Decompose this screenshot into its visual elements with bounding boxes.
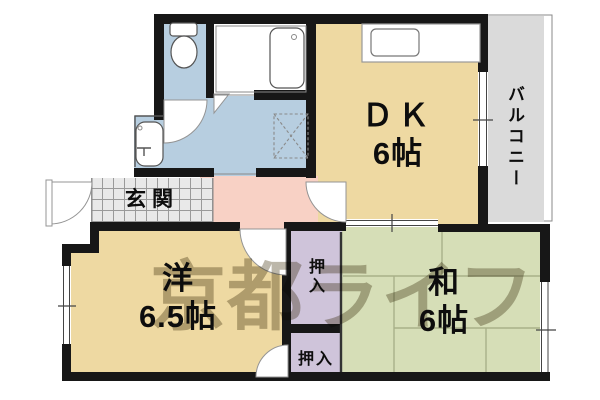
japanese-room-name: 和 [384, 264, 504, 302]
floorplan: 玄関 [0, 0, 600, 400]
toilet-door-swing [164, 100, 207, 143]
dk-room-size: 6帖 [338, 135, 458, 173]
closet-upper-label: 押入 [306, 252, 322, 302]
dk-room-label: ＤＫ 6帖 [338, 97, 458, 173]
dk-room-name: ＤＫ [338, 97, 458, 135]
dk-japanese-sliding-door [346, 214, 438, 232]
hall-dk-door-swing [306, 182, 346, 222]
western-room-name: 洋 [108, 260, 248, 298]
entrance-door-swing [50, 182, 92, 224]
kitchen-counter [362, 24, 480, 62]
western-room-label: 洋 6.5帖 [108, 260, 248, 336]
entrance-door-leaf [46, 180, 52, 226]
japanese-room-label: 和 6帖 [384, 264, 504, 340]
bathtub-fixture [216, 26, 306, 92]
washing-machine-pan [274, 114, 308, 158]
bath-door-mark [214, 94, 229, 113]
toilet-fixture [170, 23, 197, 68]
western-west-window [58, 266, 76, 344]
balcony-label: バルコニー [506, 62, 523, 212]
closet-lower-label: 押入 [292, 345, 340, 369]
western-room-size: 6.5帖 [108, 298, 248, 336]
kitchen-sink [371, 29, 419, 56]
washbasin-fixture [135, 116, 164, 167]
japanese-east-window [536, 282, 556, 372]
dk-east-window [473, 72, 493, 166]
japanese-room-size: 6帖 [384, 302, 504, 340]
closet-lower-door-swing [256, 345, 288, 377]
